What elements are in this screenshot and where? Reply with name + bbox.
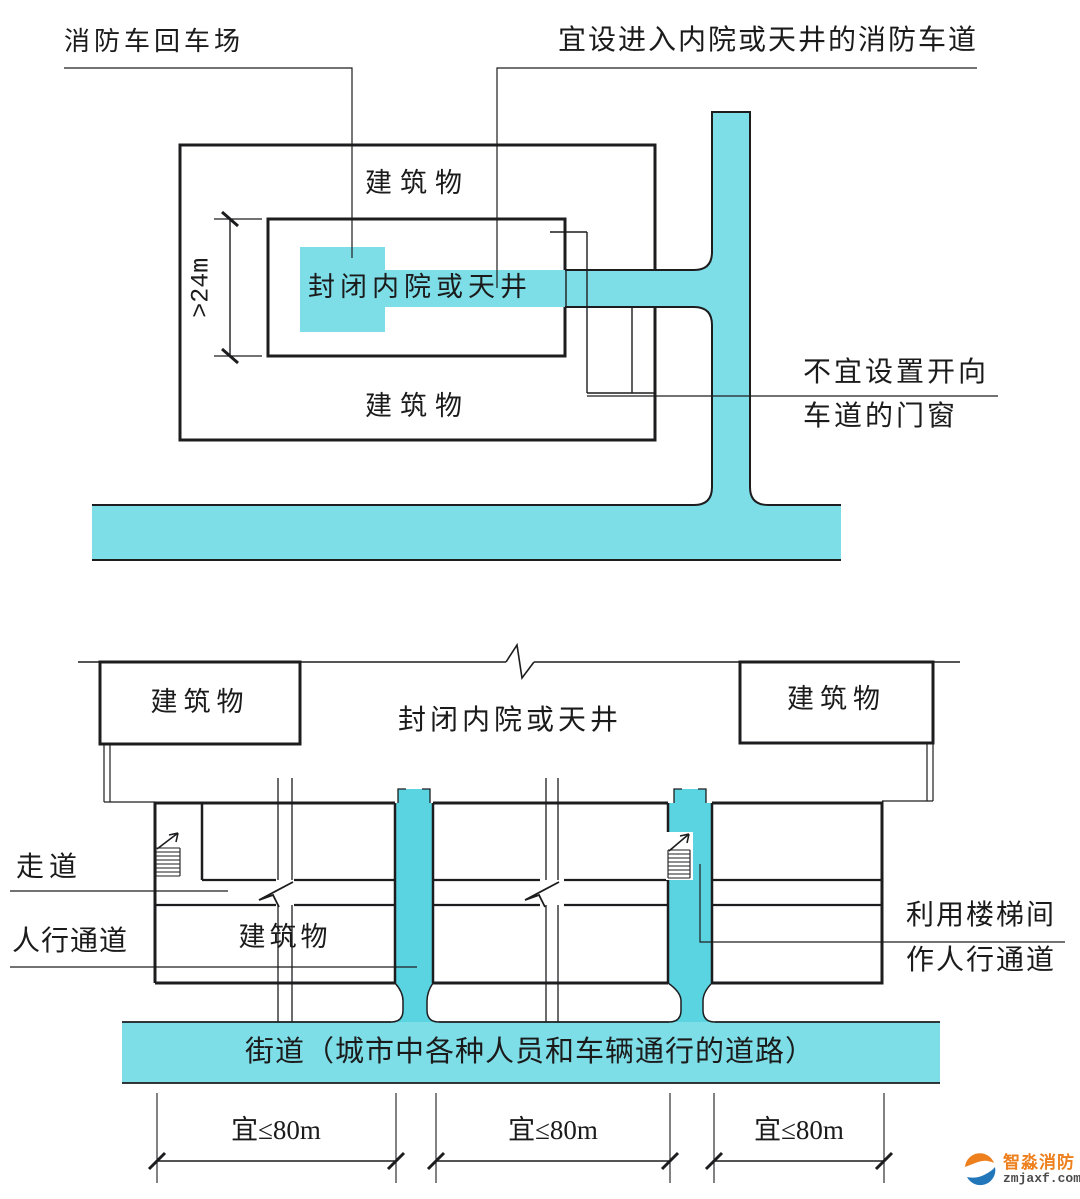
brand-name: 智淼消防	[1003, 1154, 1080, 1172]
lane-label: 宜设进入内院或天井的消防车道	[558, 26, 978, 57]
wing-connectors	[104, 743, 933, 802]
dim-80m-label-2: 宜≤80m	[473, 1116, 633, 1146]
right-building-label: 建筑物	[740, 685, 933, 715]
stair-symbol-2	[666, 832, 693, 880]
window-note-line2: 车道的门窗	[803, 402, 958, 433]
brand-domain: zmjaxf.com	[1003, 1172, 1080, 1186]
building-bottom-label: 建筑物	[180, 392, 655, 422]
stair-note-line1: 利用楼梯间	[906, 901, 1056, 932]
corridor-label: 走道	[16, 853, 82, 884]
dimension-24m-label: >24m	[187, 228, 215, 348]
courtyard-doorways	[398, 789, 706, 803]
pedestrian-label: 人行通道	[12, 927, 128, 958]
left-building-label: 建筑物	[100, 688, 300, 718]
strip-building-label: 建筑物	[223, 923, 347, 953]
dim-80m-label-1: 宜≤80m	[196, 1116, 356, 1146]
fire-lane-diagram-page: 消防车回车场 宜设进入内院或天井的消防车道 建筑物 封闭内院或天井 建筑物 >2…	[0, 0, 1080, 1199]
dimension-24m	[214, 212, 262, 363]
corridor-lines	[155, 880, 882, 905]
vertical-road-fill	[712, 112, 750, 506]
courtyard-bottom-label: 封闭内院或天井	[378, 706, 642, 737]
brand-logo-icon	[962, 1152, 998, 1188]
street-label: 街道（城市中各种人员和车辆通行的道路）	[180, 1037, 880, 1069]
courtyard-top-label: 封闭内院或天井	[295, 273, 545, 303]
watermark: 智淼消防 zmjaxf.com	[962, 1152, 1080, 1188]
building-top-label: 建筑物	[180, 169, 655, 199]
passage-funnels	[391, 983, 715, 1022]
dim-80m-label-3: 宜≤80m	[719, 1116, 879, 1146]
turnaround-label: 消防车回车场	[64, 28, 244, 57]
top-street-fill	[92, 505, 841, 560]
stair-symbol-1	[156, 833, 180, 876]
strip-outline	[155, 803, 882, 983]
window-note-line1: 不宜设置开向	[803, 358, 989, 389]
stair-note-line2: 作人行通道	[906, 946, 1056, 977]
